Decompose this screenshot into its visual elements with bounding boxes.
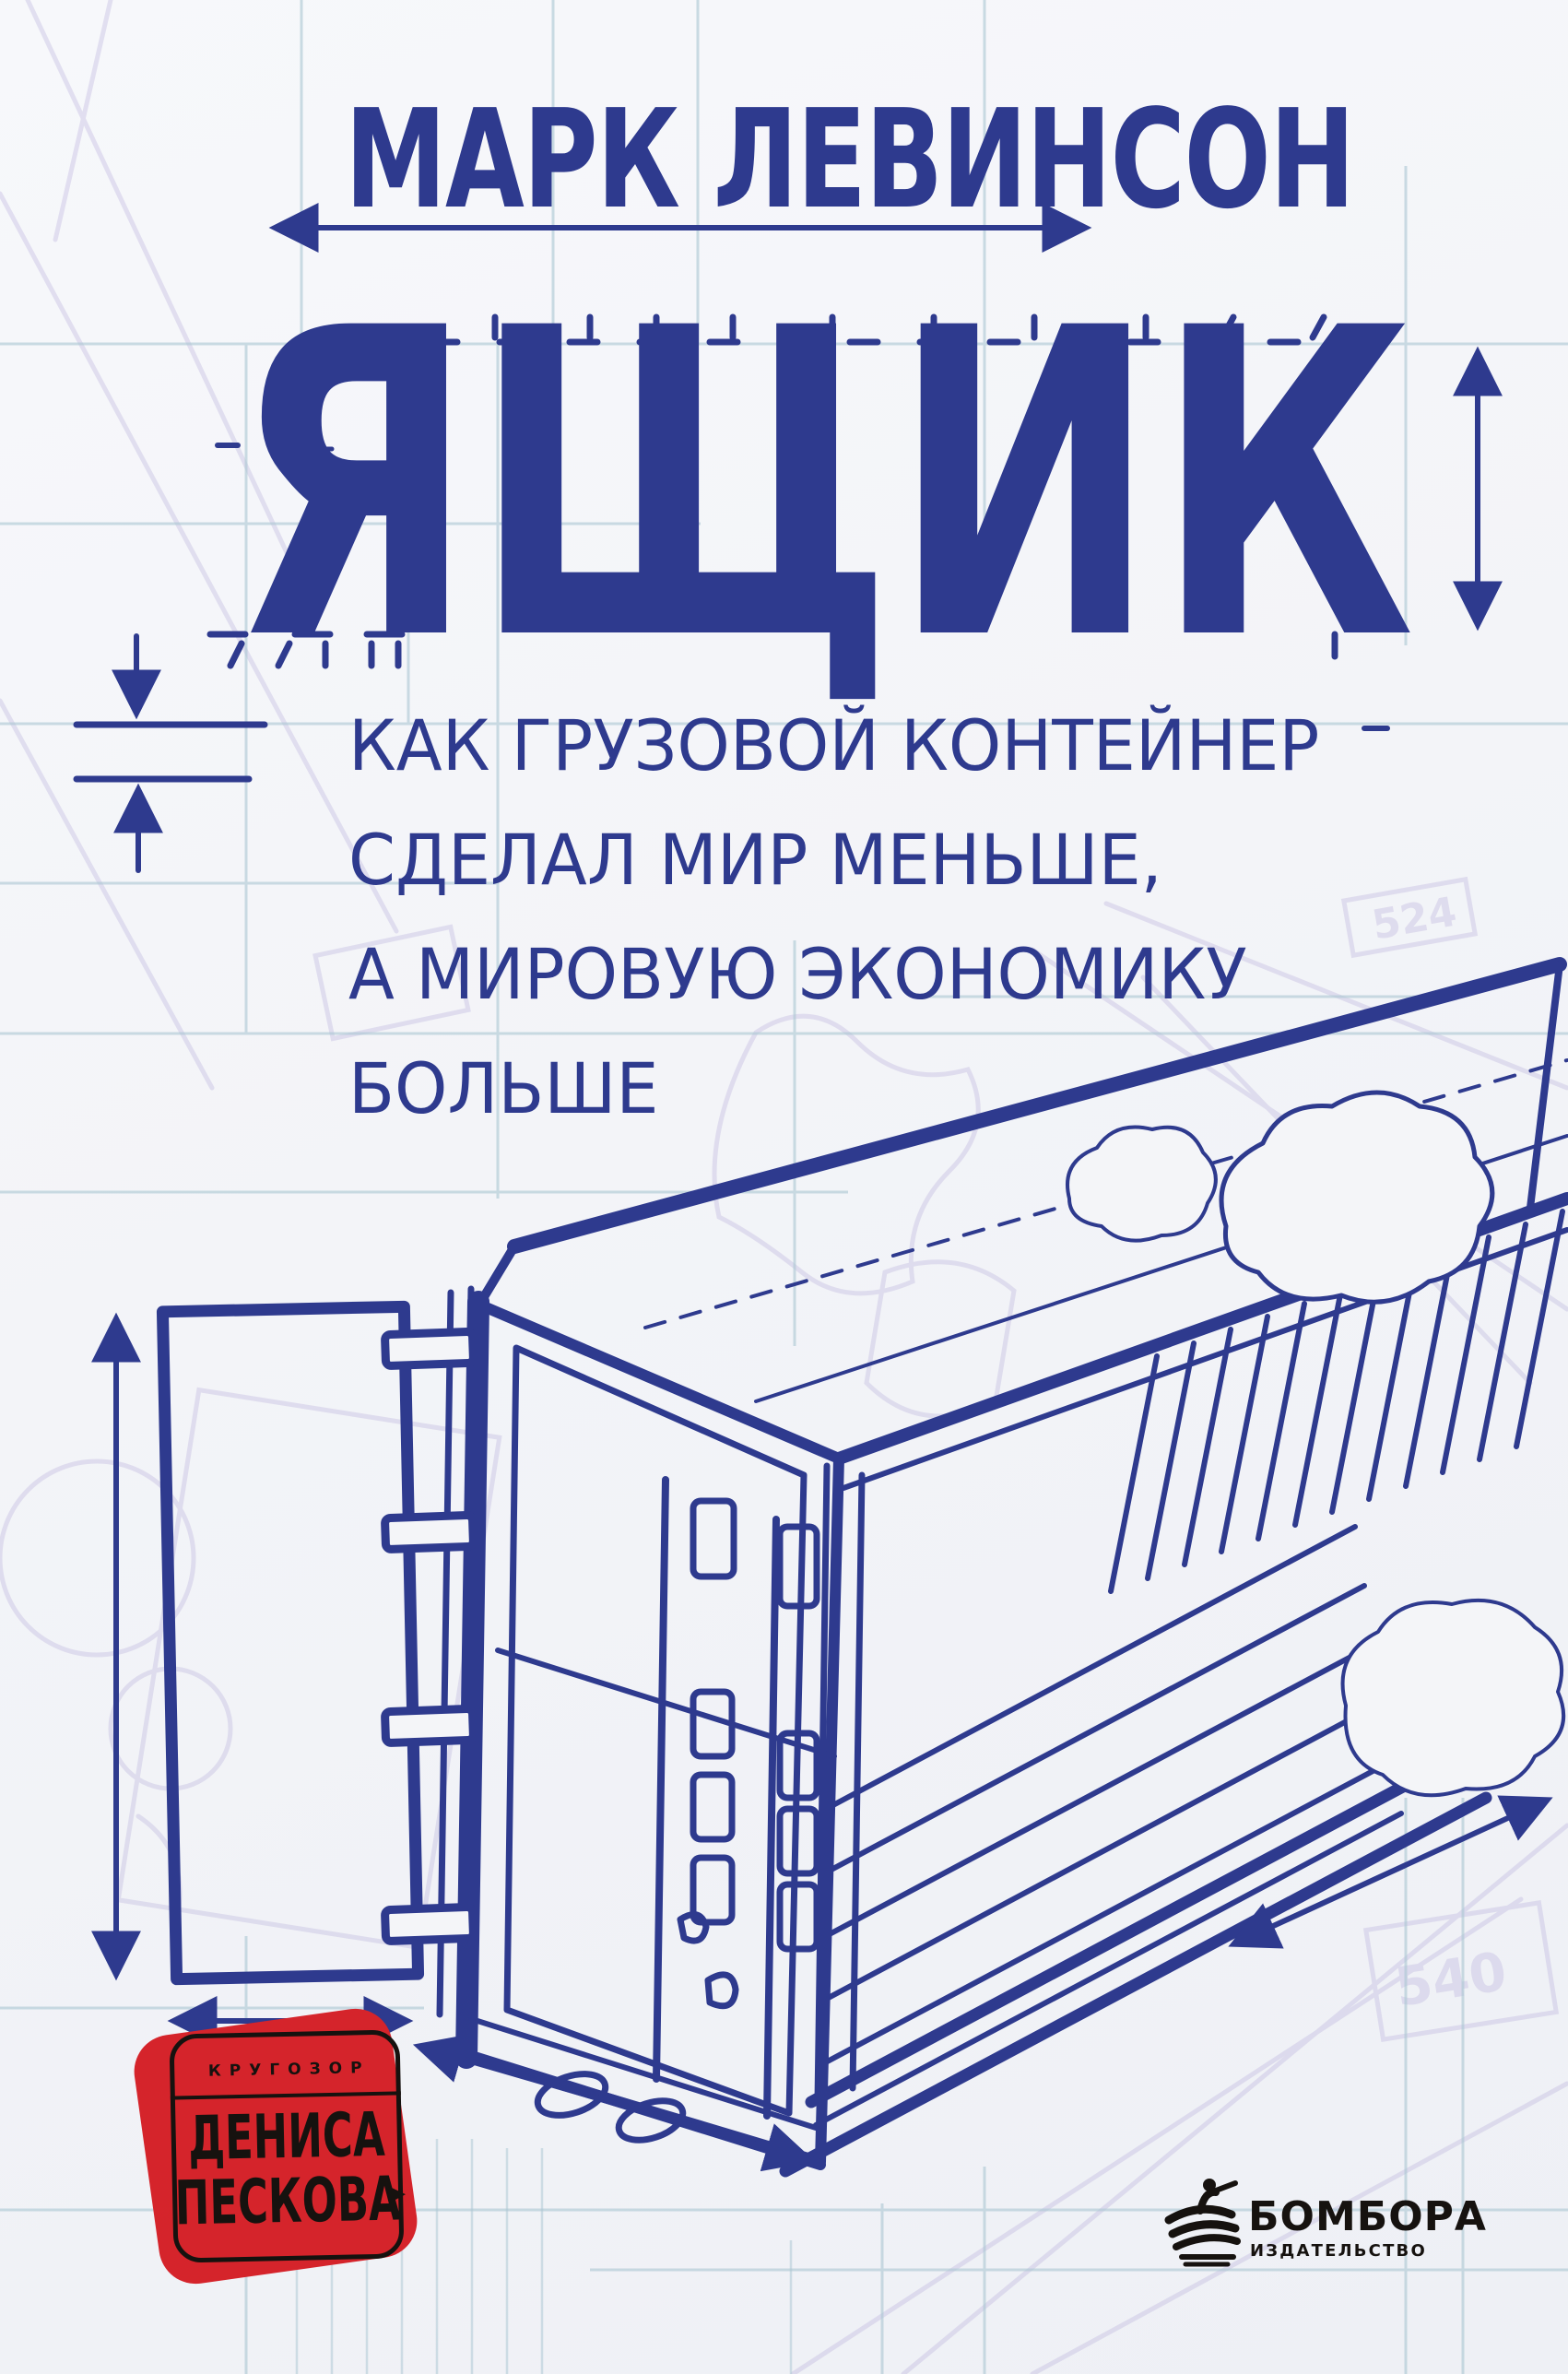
publisher-name: БОМБОРА — [1248, 2197, 1487, 2238]
subtitle-line: БОЛЬШЕ — [348, 1032, 1319, 1146]
book-subtitle: КАК ГРУЗОВОЙ КОНТЕЙНЕР СДЕЛАЛ МИР МЕНЬШЕ… — [348, 689, 1319, 1146]
badge-name-line2: ПЕСКОВА — [174, 2168, 401, 2234]
subtitle-line: А МИРОВУЮ ЭКОНОМИКУ — [348, 917, 1319, 1032]
badge-frame: КРУГОЗОР ДЕНИСА ПЕСКОВА ▶ — [169, 2029, 404, 2262]
book-cover: 524 540 — [0, 0, 1568, 2374]
subtitle-line: КАК ГРУЗОВОЙ КОНТЕЙНЕР — [348, 689, 1319, 803]
book-title: ЯЩИК — [230, 275, 1412, 699]
publisher-block: БОМБОРА ИЗДАТЕЛЬСТВО — [1163, 2172, 1468, 2274]
publisher-role: ИЗДАТЕЛЬСТВО — [1250, 2241, 1427, 2261]
publisher-logo-icon — [1163, 2176, 1241, 2268]
blueprint-label-540: 540 — [1391, 1940, 1511, 2019]
badge-series-label: КРУГОЗОР — [174, 2059, 395, 2082]
badge-name-line1: ДЕНИСА — [187, 2105, 385, 2169]
play-arrow-icon: ▶ — [388, 2181, 406, 2203]
subtitle-line: СДЕЛАЛ МИР МЕНЬШЕ, — [348, 803, 1319, 917]
series-badge: КРУГОЗОР ДЕНИСА ПЕСКОВА ▶ — [136, 2012, 422, 2284]
author-name: МАРК ЛЕВИНСОН — [345, 91, 1354, 228]
